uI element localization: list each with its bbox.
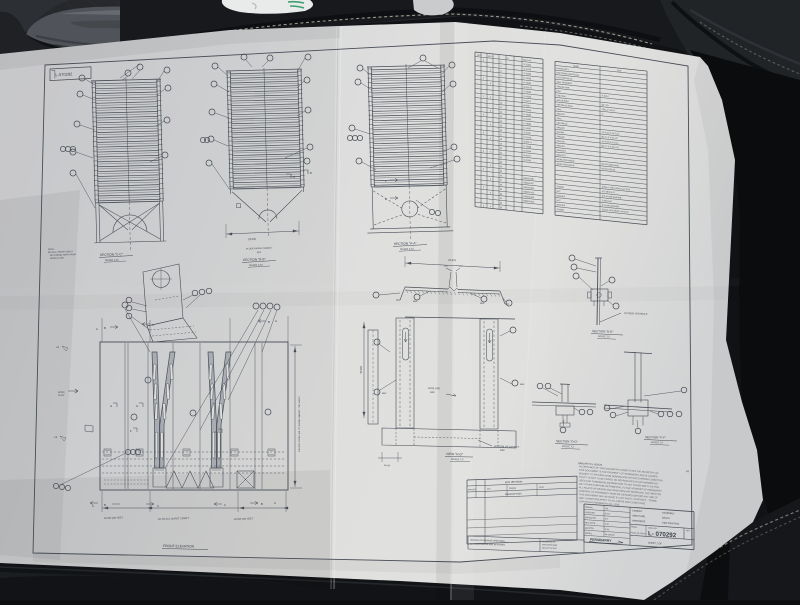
svg-text:REF: REF xyxy=(413,301,418,303)
svg-text:FRONT ELEVATION: FRONT ELEVATION xyxy=(163,544,195,549)
svg-text:E: E xyxy=(385,197,387,201)
svg-text:SECTION "D-D": SECTION "D-D" xyxy=(556,439,578,444)
svg-text:REF: REF xyxy=(382,393,387,395)
svg-text:DESCRIPTION: DESCRIPTION xyxy=(505,492,522,496)
svg-text:DO NOT SCALE: DO NOT SCALE xyxy=(542,547,558,551)
svg-text:140.000 FLOOR LINE TO INSIDE C: 140.000 FLOOR LINE TO INSIDE CABINET TOP… xyxy=(298,395,301,452)
svg-text:23.000: 23.000 xyxy=(248,237,257,241)
svg-text:PASS LINE: PASS LINE xyxy=(428,387,441,390)
svg-text:C: C xyxy=(157,504,159,508)
svg-text:WORK: WORK xyxy=(58,392,65,394)
svg-text:B: B xyxy=(268,320,270,324)
svg-text:NOTE:: NOTE: xyxy=(48,249,55,251)
svg-text:B: B xyxy=(310,171,312,175)
svg-text:B: B xyxy=(293,175,295,179)
svg-text:1": 1" xyxy=(602,114,604,116)
svg-text:FLOW: FLOW xyxy=(58,395,65,397)
svg-text:D.T.: D.T. xyxy=(605,518,609,520)
svg-text:SEAL: SEAL xyxy=(557,108,563,112)
svg-text:G: G xyxy=(136,404,138,408)
svg-text:45.000: 45.000 xyxy=(360,366,363,374)
svg-text:J.M.: J.M. xyxy=(605,508,609,510)
svg-text:A: A xyxy=(275,319,277,323)
svg-text:TOLERANCES: TOLERANCES xyxy=(542,540,556,543)
svg-text:58.000: 58.000 xyxy=(384,465,391,467)
svg-text:B: B xyxy=(104,503,106,507)
svg-text:A: A xyxy=(92,504,94,508)
svg-text:B: B xyxy=(104,326,106,330)
svg-text:A: A xyxy=(274,501,276,505)
svg-text:REF: REF xyxy=(520,384,525,386)
svg-text:SCALE 1:2: SCALE 1:2 xyxy=(651,441,664,444)
svg-text:PRINTED: PRINTED xyxy=(468,489,477,491)
svg-text:REF: REF xyxy=(430,391,435,394)
svg-text:B: B xyxy=(261,502,263,506)
svg-text:SECTION "E-E": SECTION "E-E" xyxy=(592,329,613,334)
svg-text:SCALE 1:4: SCALE 1:4 xyxy=(451,458,464,461)
svg-text:REF: REF xyxy=(480,303,485,305)
svg-text:A: A xyxy=(96,327,98,331)
svg-text:L-070292: L-070292 xyxy=(55,71,73,77)
svg-text:SECTION "F-F": SECTION "F-F" xyxy=(645,435,666,440)
svg-text:F: F xyxy=(130,429,132,433)
svg-text:C: C xyxy=(224,503,226,507)
svg-text:REF: REF xyxy=(257,252,262,254)
svg-text:R.W.: R.W. xyxy=(605,529,610,531)
svg-text:REF.: REF. xyxy=(500,449,506,452)
svg-text:DATE: DATE xyxy=(539,486,545,489)
svg-text:44.875: 44.875 xyxy=(448,258,457,262)
svg-text:B.T.S.: B.T.S. xyxy=(605,513,611,515)
svg-text:ECO REVISION: ECO REVISION xyxy=(505,480,523,484)
svg-text:F: F xyxy=(215,430,217,434)
svg-text:SCALE 1:2: SCALE 1:2 xyxy=(562,445,575,448)
svg-text:SEALS: SEALS xyxy=(662,516,670,520)
svg-text:SCALE 1:2: SCALE 1:2 xyxy=(598,335,611,338)
svg-text:DRAWN: DRAWN xyxy=(509,487,517,490)
svg-text:SPECIFIED ARE: SPECIFIED ARE xyxy=(542,543,558,547)
svg-text:SEAL: SEAL xyxy=(557,117,563,121)
svg-text:C: C xyxy=(152,323,154,327)
svg-text:S.M.: S.M. xyxy=(605,524,610,526)
svg-text:DRAWN: DRAWN xyxy=(585,506,593,510)
svg-text:VIEW "D-D": VIEW "D-D" xyxy=(446,452,463,456)
svg-text:G: G xyxy=(110,404,112,408)
